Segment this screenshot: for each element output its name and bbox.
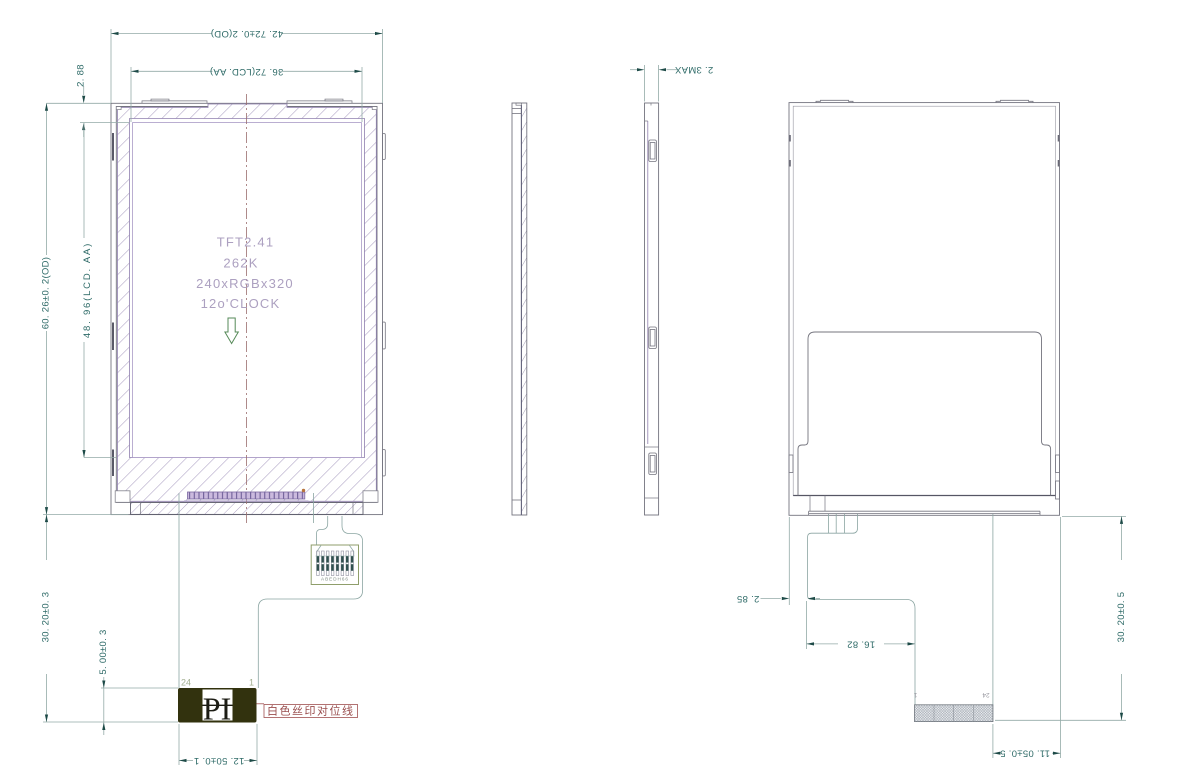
svg-text:240xRGBx320: 240xRGBx320 — [196, 276, 294, 291]
svg-text:48. 96(LCD. AA): 48. 96(LCD. AA) — [82, 242, 93, 338]
svg-text:5. 00±0. 3: 5. 00±0. 3 — [98, 629, 109, 674]
svg-text:2. 88: 2. 88 — [76, 64, 87, 87]
svg-text:12. 50±0. 1: 12. 50±0. 1 — [194, 755, 245, 766]
svg-text:24: 24 — [181, 678, 191, 688]
svg-text:11. 05±0. 5: 11. 05±0. 5 — [1000, 748, 1050, 759]
svg-text:30. 20±0. 5: 30. 20±0. 5 — [1116, 592, 1127, 643]
svg-text:PI: PI — [203, 691, 231, 727]
svg-text:60. 26±0. 2(OD): 60. 26±0. 2(OD) — [41, 257, 52, 330]
svg-text:16. 82: 16. 82 — [847, 638, 875, 649]
svg-text:42. 72±0. 2(OD): 42. 72±0. 2(OD) — [211, 28, 284, 39]
svg-text:262K: 262K — [223, 256, 258, 271]
svg-text:12o'CLOCK: 12o'CLOCK — [201, 296, 281, 311]
svg-text:30. 20±0. 3: 30. 20±0. 3 — [41, 592, 52, 643]
svg-text:1: 1 — [913, 691, 917, 698]
svg-text:白色丝印对位线: 白色丝印对位线 — [267, 704, 355, 718]
svg-text:2. 3MAX: 2. 3MAX — [674, 64, 713, 75]
svg-text:24: 24 — [982, 691, 990, 698]
svg-text:TFT2.41: TFT2.41 — [217, 235, 275, 250]
svg-text:2. 85: 2. 85 — [737, 593, 760, 604]
svg-text:36. 72(LCD. AA): 36. 72(LCD. AA) — [210, 66, 284, 77]
svg-text:1: 1 — [249, 678, 254, 688]
svg-text:ABEDH66: ABEDH66 — [321, 577, 349, 582]
